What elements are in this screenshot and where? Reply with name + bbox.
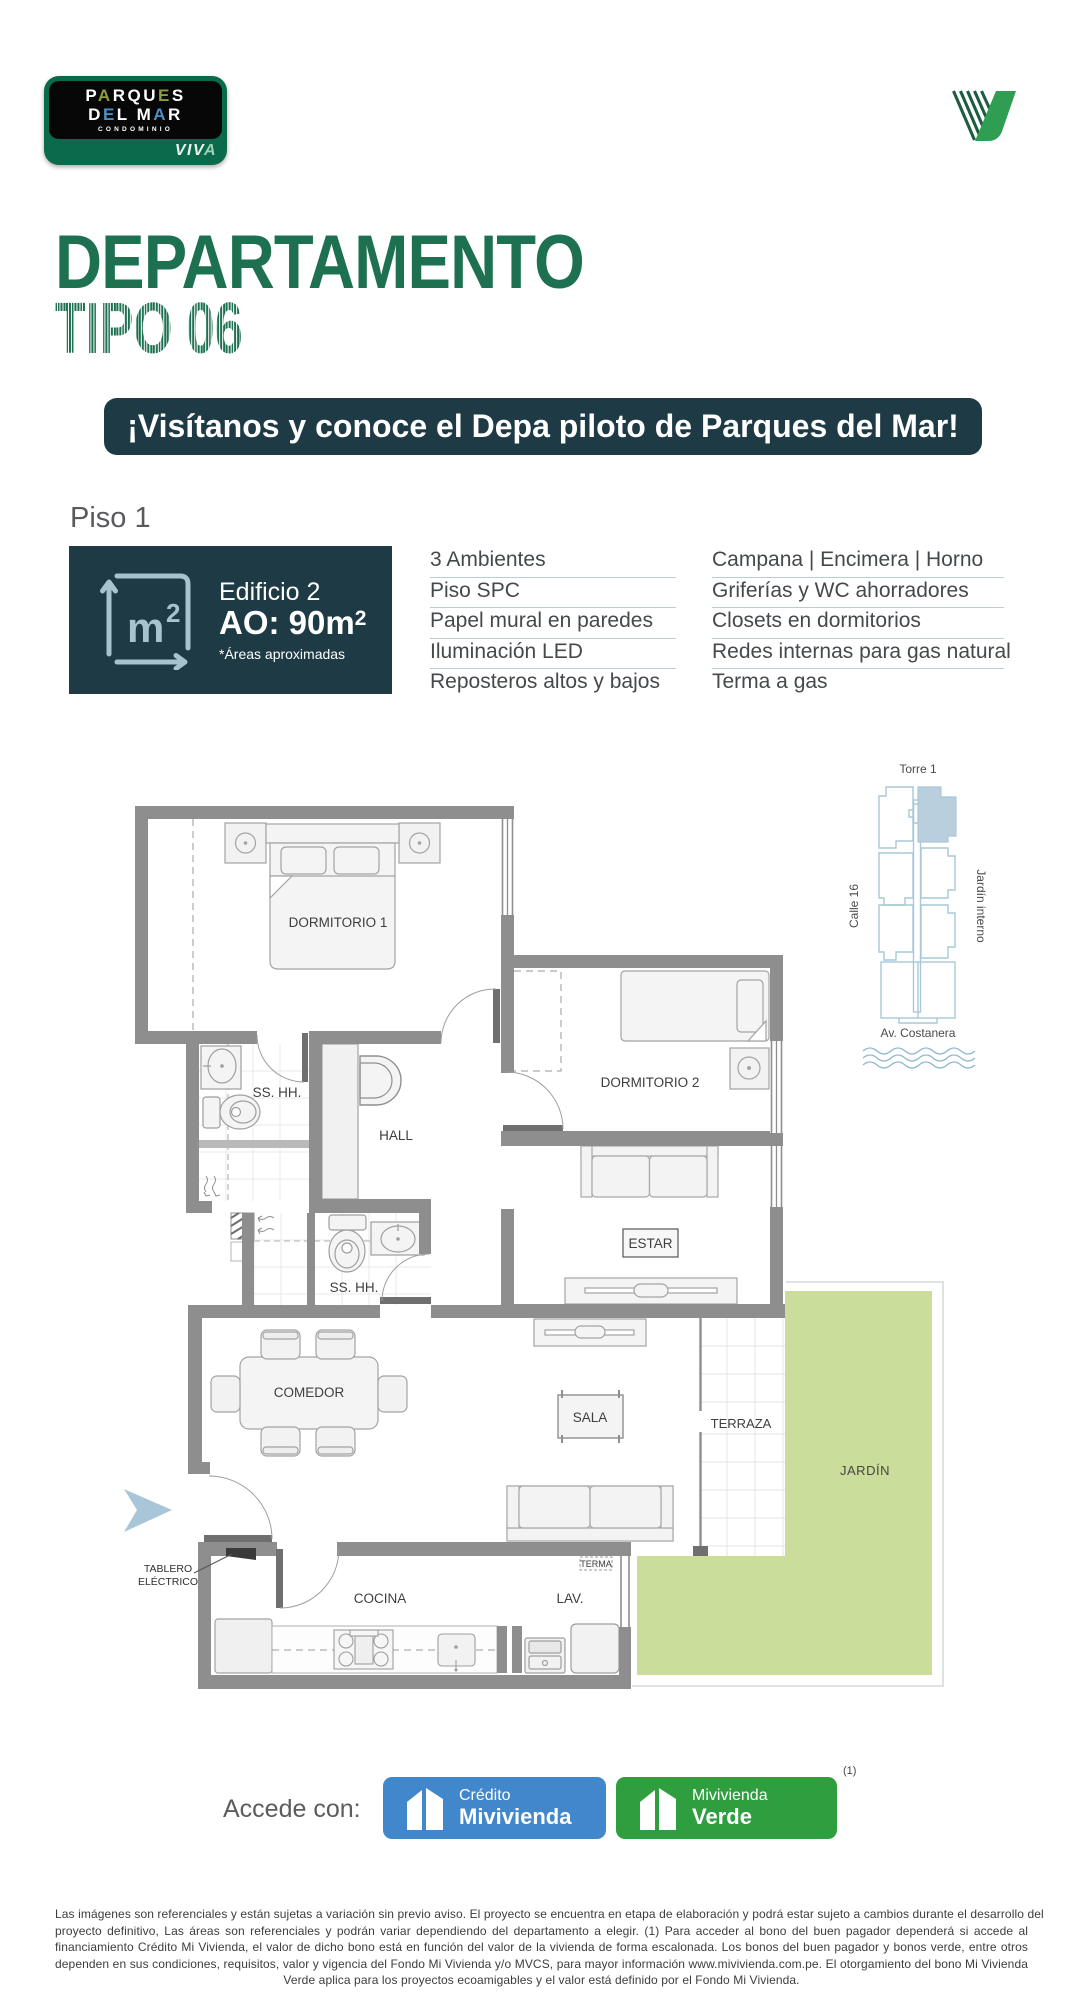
svg-text:LAV.: LAV. xyxy=(556,1591,583,1606)
svg-text:ESTAR: ESTAR xyxy=(628,1236,672,1251)
svg-text:Calle 16: Calle 16 xyxy=(847,884,861,928)
svg-text:SS. HH.: SS. HH. xyxy=(330,1280,379,1295)
svg-text:DORMITORIO 2: DORMITORIO 2 xyxy=(601,1075,700,1090)
svg-text:Jardín interno: Jardín interno xyxy=(974,869,988,943)
svg-text:Av. Costanera: Av. Costanera xyxy=(881,1026,956,1040)
svg-text:COCINA: COCINA xyxy=(354,1591,407,1606)
svg-text:TABLERO: TABLERO xyxy=(144,1563,192,1575)
svg-text:Torre 1: Torre 1 xyxy=(899,762,937,776)
svg-text:COMEDOR: COMEDOR xyxy=(274,1385,345,1400)
svg-text:ELÉCTRICO: ELÉCTRICO xyxy=(138,1575,198,1588)
svg-text:TERMA: TERMA xyxy=(580,1559,612,1569)
svg-text:SS. HH.: SS. HH. xyxy=(253,1085,302,1100)
svg-text:JARDÍN: JARDÍN xyxy=(840,1463,890,1478)
svg-text:SALA: SALA xyxy=(573,1410,608,1425)
svg-text:TERRAZA: TERRAZA xyxy=(711,1416,772,1431)
svg-text:HALL: HALL xyxy=(379,1128,413,1143)
svg-text:DORMITORIO 1: DORMITORIO 1 xyxy=(289,915,388,930)
